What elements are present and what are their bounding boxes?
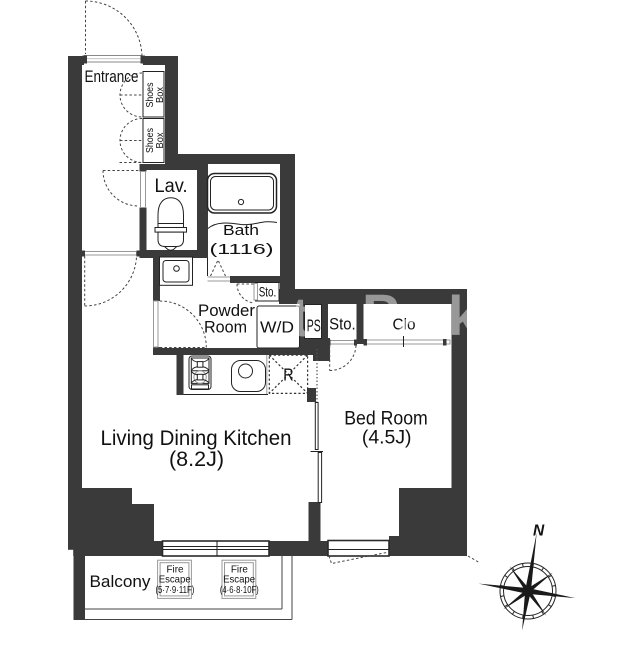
svg-text:(5·7·9·11F): (5·7·9·11F)	[155, 585, 194, 596]
svg-text:(4·6·8·10F): (4·6·8·10F)	[220, 585, 259, 596]
svg-text:W/D: W/D	[260, 320, 294, 337]
svg-text:Entrance: Entrance	[85, 68, 139, 86]
svg-text:Living Dining Kitchen: Living Dining Kitchen	[101, 427, 292, 450]
svg-text:Balcony: Balcony	[90, 573, 152, 591]
svg-text:(8.2J): (8.2J)	[169, 448, 224, 471]
svg-text:Sto.: Sto.	[329, 315, 356, 333]
svg-text:R: R	[283, 365, 293, 385]
svg-text:Box: Box	[155, 133, 166, 149]
svg-text:Escape: Escape	[223, 574, 255, 586]
svg-text:(1116): (1116)	[210, 242, 274, 258]
svg-text:Room: Room	[204, 318, 247, 336]
svg-text:(4.5J): (4.5J)	[362, 427, 412, 449]
svg-text:N: N	[533, 523, 545, 540]
svg-text:Powder: Powder	[198, 302, 256, 320]
svg-text:t: t	[291, 285, 310, 348]
svg-text:r: r	[426, 285, 448, 348]
svg-text:Lav.: Lav.	[155, 176, 188, 197]
svg-text:Escape: Escape	[159, 574, 191, 586]
svg-text:k: k	[448, 284, 480, 347]
svg-text:Sto.: Sto.	[259, 284, 277, 300]
svg-text:Bath: Bath	[223, 223, 259, 239]
svg-text:P: P	[362, 282, 399, 345]
svg-text:Box: Box	[155, 87, 166, 103]
